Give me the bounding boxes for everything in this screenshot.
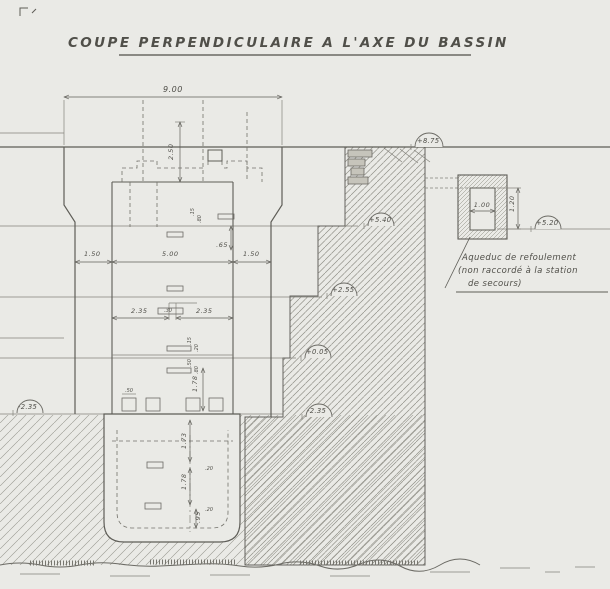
svg-text:.20: .20 [205,466,213,472]
section-drawing: 9.00 2.50 1.50 5.00 1.50 2.35 .30 2.35 .… [0,0,610,589]
svg-text:.80: .80 [194,366,200,374]
dim-label-2-50: 2.50 [167,144,175,160]
dim-label-0-30: .30 [164,308,172,314]
aqueduct-width-label: 1.00 [474,201,490,209]
svg-text:.15: .15 [187,337,193,345]
drawing-sheet: 9.00 2.50 1.50 5.00 1.50 2.35 .30 2.35 .… [0,0,610,589]
corner-registration-mark [20,8,36,16]
svg-text:.50: .50 [187,359,193,367]
svg-text:+0.05: +0.05 [306,348,328,356]
svg-text:.95: .95 [194,511,202,523]
pile-squares [122,398,223,411]
dim-0-65: .65 [216,226,231,250]
svg-text:+5.20: +5.20 [536,219,558,227]
svg-text:+5.40: +5.40 [369,216,391,224]
svg-text:.20: .20 [205,507,213,513]
svg-text:+8.75: +8.75 [417,137,439,145]
drawing-title: COUPE PERPENDICULAIRE A L'AXE DU BASSIN [68,35,509,51]
aqueduct-caption-1: Aqueduc de refoulement [461,253,577,263]
svg-text:.15: .15 [190,208,196,216]
capstan-block [208,150,222,161]
svg-text:1.78: 1.78 [191,376,199,392]
elevation-minus-2-35-left: -2.35 [13,400,43,416]
dim-9-00: 9.00 [64,85,282,145]
aqueduct-detail: 1.00 1.20 +5.20 Aqueduc de refoulement (… [425,175,610,292]
basin-outer-walls [64,147,282,417]
dim-label-0-65: .65 [216,241,228,249]
dim-label-1-50-right: 1.50 [243,250,259,258]
elevation-5-20: +5.20 [531,216,561,232]
aqueduct-caption-3: de secours) [468,279,522,289]
dim-label-2-35-left: 2.35 [131,307,147,315]
svg-text:.50: .50 [125,388,133,394]
svg-text:-2.35: -2.35 [18,403,37,411]
trench-outline [104,414,240,542]
svg-text:1.73: 1.73 [180,433,188,449]
dim-row-walls: 1.50 5.00 1.50 [75,250,271,262]
retaining-wall-hatch [245,147,425,565]
svg-text:.20: .20 [194,344,200,352]
svg-text:+2.55: +2.55 [332,286,354,294]
svg-text:-2.35: -2.35 [307,407,326,415]
dim-label-2-35-right: 2.35 [196,307,212,315]
dim-2-50: 2.50 [167,122,185,182]
dim-label-5-00: 5.00 [162,250,178,258]
dim-label-1-50-left: 1.50 [84,250,100,258]
superstructure-dashed [122,100,262,227]
svg-text:1.78: 1.78 [180,474,188,490]
aqueduct-caption-2: (non raccordé à la station [458,265,578,276]
dim-row-floor: 2.35 .30 2.35 [112,303,233,320]
svg-text:.80: .80 [197,215,203,223]
dim-label-9-00: 9.00 [163,85,183,94]
aqueduct-height-label: 1.20 [508,196,516,212]
